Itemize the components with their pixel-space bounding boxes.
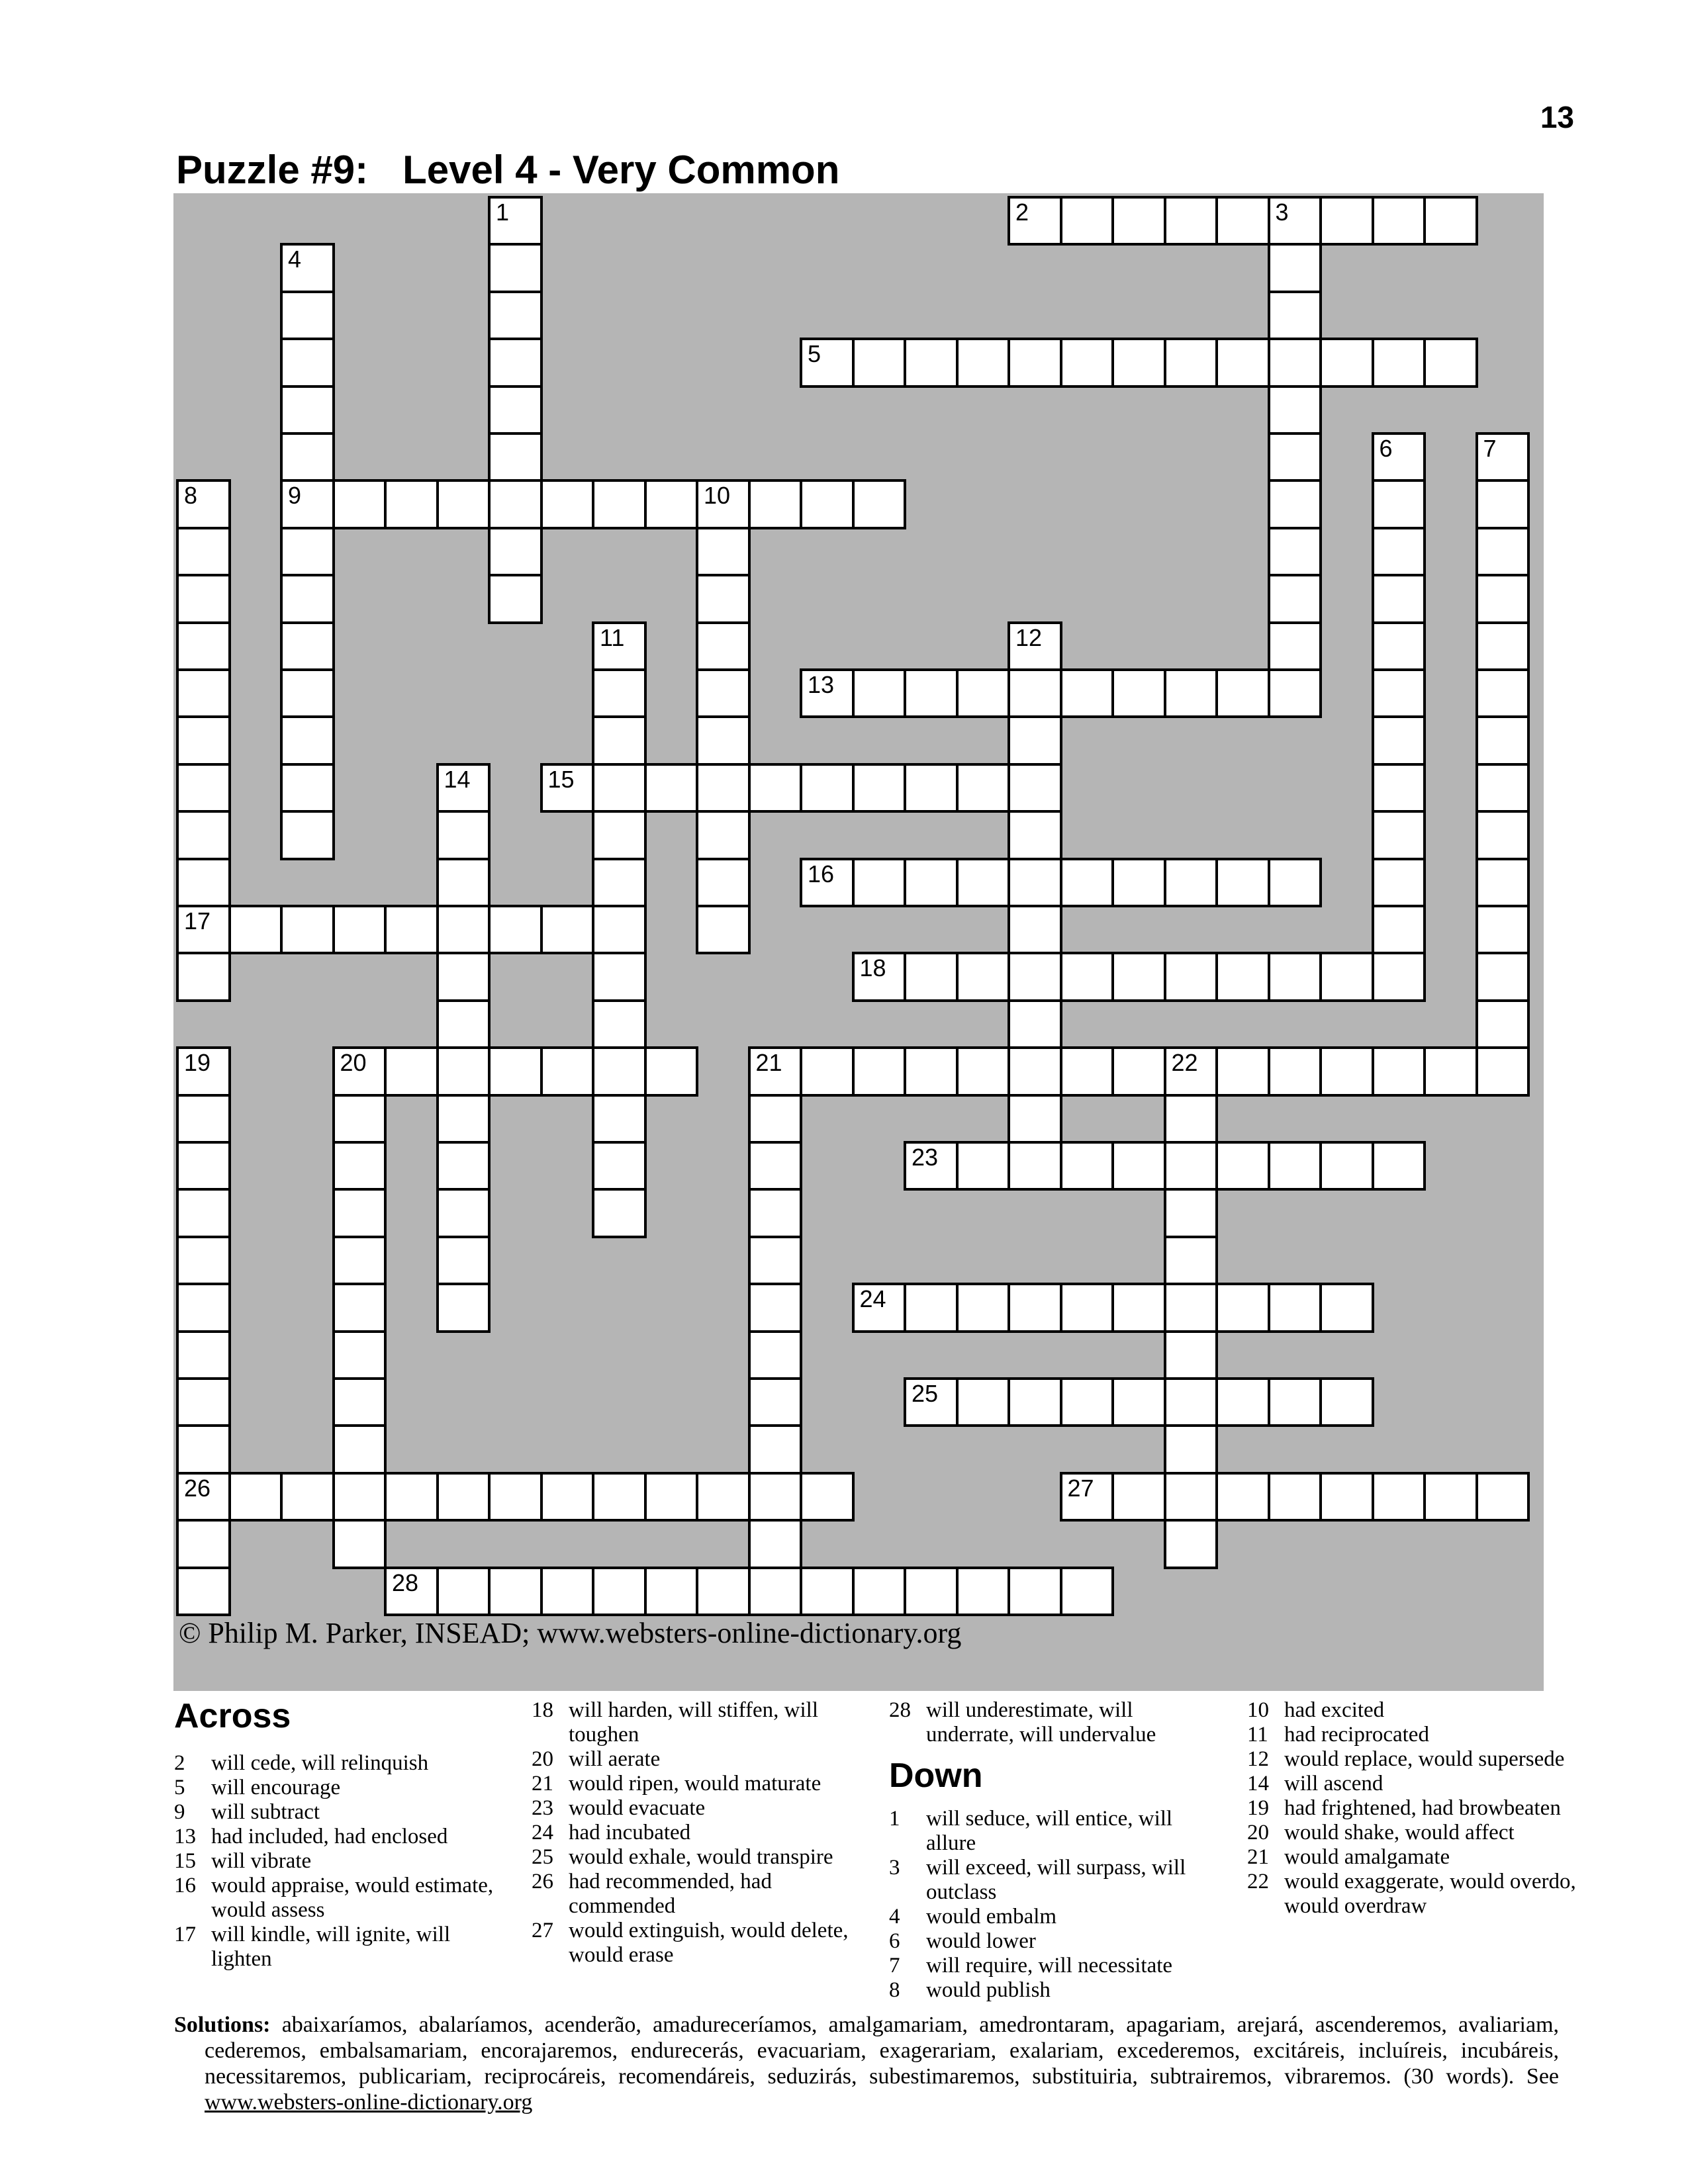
grid-cell[interactable] [1164,1472,1219,1522]
grid-cell[interactable] [852,1567,907,1616]
grid-cell[interactable] [176,1188,231,1238]
grid-cell[interactable] [228,1472,283,1522]
grid-cell[interactable] [1164,338,1219,387]
grid-cell[interactable] [1268,1377,1323,1427]
grid-cell[interactable] [956,763,1011,813]
grid-cell[interactable] [332,1236,387,1285]
grid-cell[interactable] [540,1046,595,1096]
grid-cell[interactable] [1268,952,1323,1001]
grid-cell[interactable] [748,479,803,529]
grid-cell[interactable] [332,1472,387,1522]
grid-cell[interactable] [280,1472,335,1522]
grid-cell[interactable] [332,1283,387,1332]
grid-cell[interactable]: 21 [748,1046,803,1096]
grid-cell[interactable] [904,1283,959,1332]
grid-cell[interactable] [436,1283,491,1332]
grid-cell[interactable] [1268,432,1323,482]
grid-cell[interactable] [1215,1046,1270,1096]
grid-cell[interactable] [1476,1046,1530,1096]
grid-cell[interactable] [592,999,647,1049]
grid-cell[interactable] [1423,338,1478,387]
grid-cell[interactable] [1164,1188,1219,1238]
grid-cell[interactable] [1423,196,1478,246]
grid-cell[interactable] [1111,196,1166,246]
grid-cell[interactable] [1268,243,1323,293]
grid-cell[interactable]: 1 [488,196,543,246]
grid-cell[interactable] [1060,1283,1115,1332]
grid-cell[interactable] [436,999,491,1049]
grid-cell[interactable] [436,905,491,954]
grid-cell[interactable] [540,905,595,954]
grid-cell[interactable] [904,338,959,387]
grid-cell[interactable]: 14 [436,763,491,813]
grid-cell[interactable] [332,1519,387,1569]
grid-cell[interactable] [1008,1141,1062,1191]
grid-cell[interactable] [436,858,491,907]
grid-cell[interactable] [176,1330,231,1380]
grid-cell[interactable] [332,1188,387,1238]
grid-cell[interactable] [904,668,959,718]
grid-cell[interactable] [956,952,1011,1001]
grid-cell[interactable] [1060,1141,1115,1191]
grid-cell[interactable] [176,1141,231,1191]
grid-cell[interactable] [176,763,231,813]
grid-cell[interactable]: 23 [904,1141,959,1191]
grid-cell[interactable] [176,715,231,765]
grid-cell[interactable] [384,1046,439,1096]
grid-cell[interactable] [1111,1046,1166,1096]
grid-cell[interactable]: 2 [1008,196,1062,246]
grid-cell[interactable] [176,952,231,1001]
grid-cell[interactable] [852,338,907,387]
grid-cell[interactable] [1164,1377,1219,1427]
grid-cell[interactable] [644,1472,699,1522]
grid-cell[interactable]: 3 [1268,196,1323,246]
grid-cell[interactable] [696,763,751,813]
grid-cell[interactable] [436,1141,491,1191]
grid-cell[interactable] [384,1472,439,1522]
grid-cell[interactable] [1164,1141,1219,1191]
grid-cell[interactable] [1268,1141,1323,1191]
grid-cell[interactable] [1268,385,1323,435]
grid-cell[interactable] [800,1046,855,1096]
grid-cell[interactable] [488,574,543,623]
grid-cell[interactable] [1164,1424,1219,1474]
grid-cell[interactable]: 15 [540,763,595,813]
grid-cell[interactable] [280,621,335,671]
grid-cell[interactable] [1476,1472,1530,1522]
grid-cell[interactable] [488,1472,543,1522]
grid-cell[interactable] [1008,905,1062,954]
grid-cell[interactable] [1372,1141,1427,1191]
solutions-link[interactable]: www.websters-online-dictionary.org [205,2090,532,2115]
grid-cell[interactable] [1008,1046,1062,1096]
grid-cell[interactable] [592,1567,647,1616]
grid-cell[interactable] [176,527,231,576]
grid-cell[interactable] [280,715,335,765]
grid-cell[interactable] [956,1377,1011,1427]
grid-cell[interactable] [1215,952,1270,1001]
grid-cell[interactable] [592,858,647,907]
grid-cell[interactable] [1008,338,1062,387]
grid-cell[interactable] [1423,1046,1478,1096]
grid-cell[interactable] [488,432,543,482]
grid-cell[interactable] [592,952,647,1001]
grid-cell[interactable] [1268,527,1323,576]
grid-cell[interactable] [592,810,647,860]
grid-cell[interactable] [696,1472,751,1522]
grid-cell[interactable] [852,1046,907,1096]
grid-cell[interactable] [1164,668,1219,718]
grid-cell[interactable] [436,952,491,1001]
grid-cell[interactable] [1319,1472,1374,1522]
grid-cell[interactable] [1372,715,1427,765]
grid-cell[interactable] [1060,1377,1115,1427]
grid-cell[interactable] [280,668,335,718]
grid-cell[interactable]: 11 [592,621,647,671]
grid-cell[interactable] [592,905,647,954]
grid-cell[interactable] [1215,196,1270,246]
grid-cell[interactable] [1008,1283,1062,1332]
grid-cell[interactable] [1372,479,1427,529]
grid-cell[interactable]: 8 [176,479,231,529]
grid-cell[interactable] [488,527,543,576]
grid-cell[interactable] [748,1377,803,1427]
grid-cell[interactable] [1215,1472,1270,1522]
grid-cell[interactable] [1372,858,1427,907]
grid-cell[interactable] [436,1094,491,1144]
grid-cell[interactable] [1164,1519,1219,1569]
grid-cell[interactable] [1476,668,1530,718]
grid-cell[interactable] [488,291,543,340]
grid-cell[interactable]: 18 [852,952,907,1001]
grid-cell[interactable] [1319,952,1374,1001]
grid-cell[interactable] [1111,668,1166,718]
grid-cell[interactable] [280,574,335,623]
grid-cell[interactable] [488,905,543,954]
grid-cell[interactable]: 10 [696,479,751,529]
grid-cell[interactable] [1268,1283,1323,1332]
grid-cell[interactable] [592,1046,647,1096]
grid-cell[interactable] [1008,999,1062,1049]
grid-cell[interactable] [748,1519,803,1569]
grid-cell[interactable] [696,905,751,954]
grid-cell[interactable] [748,1567,803,1616]
grid-cell[interactable] [1268,338,1323,387]
grid-cell[interactable] [436,1567,491,1616]
grid-cell[interactable] [592,1472,647,1522]
grid-cell[interactable] [592,1188,647,1238]
grid-cell[interactable] [644,1567,699,1616]
grid-cell[interactable]: 27 [1060,1472,1115,1522]
grid-cell[interactable] [1476,574,1530,623]
grid-cell[interactable] [1319,1046,1374,1096]
grid-cell[interactable] [1268,574,1323,623]
grid-cell[interactable] [1008,952,1062,1001]
grid-cell[interactable] [1164,952,1219,1001]
grid-cell[interactable] [1268,858,1323,907]
grid-cell[interactable] [1060,952,1115,1001]
grid-cell[interactable] [1423,1472,1478,1522]
grid-cell[interactable] [540,1567,595,1616]
grid-cell[interactable] [332,1377,387,1427]
grid-cell[interactable] [1008,715,1062,765]
grid-cell[interactable] [748,1188,803,1238]
grid-cell[interactable] [904,952,959,1001]
grid-cell[interactable] [1164,1094,1219,1144]
grid-cell[interactable] [748,1141,803,1191]
grid-cell[interactable] [176,574,231,623]
grid-cell[interactable] [1268,1472,1323,1522]
grid-cell[interactable] [1164,1330,1219,1380]
grid-cell[interactable] [176,1567,231,1616]
grid-cell[interactable] [644,763,699,813]
grid-cell[interactable] [904,763,959,813]
grid-cell[interactable] [436,1236,491,1285]
grid-cell[interactable]: 24 [852,1283,907,1332]
grid-cell[interactable] [956,858,1011,907]
grid-cell[interactable] [748,1472,803,1522]
grid-cell[interactable] [696,715,751,765]
grid-cell[interactable] [592,1141,647,1191]
grid-cell[interactable] [800,763,855,813]
grid-cell[interactable]: 26 [176,1472,231,1522]
grid-cell[interactable] [488,338,543,387]
grid-cell[interactable] [800,479,855,529]
grid-cell[interactable] [696,621,751,671]
grid-cell[interactable] [1215,1141,1270,1191]
grid-cell[interactable] [696,1567,751,1616]
grid-cell[interactable] [332,479,387,529]
grid-cell[interactable] [436,479,491,529]
grid-cell[interactable] [176,858,231,907]
grid-cell[interactable] [1319,196,1374,246]
grid-cell[interactable] [1215,858,1270,907]
grid-cell[interactable] [280,905,335,954]
grid-cell[interactable] [592,668,647,718]
grid-cell[interactable]: 13 [800,668,855,718]
grid-cell[interactable]: 28 [384,1567,439,1616]
grid-cell[interactable] [540,479,595,529]
grid-cell[interactable] [1268,291,1323,340]
grid-cell[interactable] [332,1424,387,1474]
grid-cell[interactable]: 25 [904,1377,959,1427]
grid-cell[interactable] [1476,999,1530,1049]
grid-cell[interactable] [1111,952,1166,1001]
grid-cell[interactable] [1008,668,1062,718]
grid-cell[interactable] [1319,338,1374,387]
grid-cell[interactable] [176,1519,231,1569]
grid-cell[interactable]: 19 [176,1046,231,1096]
grid-cell[interactable]: 5 [800,338,855,387]
grid-cell[interactable] [1215,1283,1270,1332]
grid-cell[interactable] [176,1424,231,1474]
grid-cell[interactable] [1476,905,1530,954]
grid-cell[interactable]: 9 [280,479,335,529]
grid-cell[interactable] [280,527,335,576]
grid-cell[interactable] [696,574,751,623]
grid-cell[interactable] [852,763,907,813]
grid-cell[interactable] [176,668,231,718]
grid-cell[interactable] [696,668,751,718]
grid-cell[interactable] [1008,1377,1062,1427]
grid-cell[interactable] [904,1567,959,1616]
grid-cell[interactable] [1008,810,1062,860]
grid-cell[interactable]: 6 [1372,432,1427,482]
grid-cell[interactable] [800,1567,855,1616]
grid-cell[interactable] [436,1188,491,1238]
grid-cell[interactable] [748,1330,803,1380]
grid-cell[interactable] [1319,1283,1374,1332]
grid-cell[interactable] [1111,338,1166,387]
grid-cell[interactable] [1372,527,1427,576]
grid-cell[interactable] [852,479,907,529]
grid-cell[interactable] [1476,527,1530,576]
grid-cell[interactable] [1060,668,1115,718]
grid-cell[interactable] [1215,1377,1270,1427]
grid-cell[interactable] [488,1046,543,1096]
grid-cell[interactable] [1111,1472,1166,1522]
grid-cell[interactable] [1372,338,1427,387]
grid-cell[interactable] [176,621,231,671]
grid-cell[interactable] [956,668,1011,718]
grid-cell[interactable] [1164,196,1219,246]
grid-cell[interactable] [956,1567,1011,1616]
grid-cell[interactable] [228,905,283,954]
grid-cell[interactable] [904,858,959,907]
grid-cell[interactable] [644,479,699,529]
grid-cell[interactable] [176,1236,231,1285]
grid-cell[interactable] [1060,1567,1115,1616]
grid-cell[interactable] [1372,810,1427,860]
grid-cell[interactable] [332,1330,387,1380]
grid-cell[interactable] [592,715,647,765]
grid-cell[interactable] [800,1472,855,1522]
grid-cell[interactable] [1319,1141,1374,1191]
grid-cell[interactable] [1476,763,1530,813]
grid-cell[interactable] [384,905,439,954]
grid-cell[interactable] [1060,1046,1115,1096]
grid-cell[interactable]: 16 [800,858,855,907]
grid-cell[interactable] [1111,1283,1166,1332]
grid-cell[interactable] [1476,810,1530,860]
grid-cell[interactable]: 22 [1164,1046,1219,1096]
grid-cell[interactable] [1060,858,1115,907]
grid-cell[interactable] [1476,715,1530,765]
grid-cell[interactable] [956,1141,1011,1191]
grid-cell[interactable] [956,338,1011,387]
grid-cell[interactable] [592,479,647,529]
grid-cell[interactable] [1008,858,1062,907]
grid-cell[interactable] [280,763,335,813]
grid-cell[interactable] [1008,763,1062,813]
grid-cell[interactable] [1164,1236,1219,1285]
grid-cell[interactable] [1060,338,1115,387]
grid-cell[interactable] [748,763,803,813]
grid-cell[interactable] [488,385,543,435]
grid-cell[interactable] [956,1046,1011,1096]
grid-cell[interactable] [1372,763,1427,813]
grid-cell[interactable] [592,1094,647,1144]
grid-cell[interactable] [436,1046,491,1096]
grid-cell[interactable] [488,479,543,529]
grid-cell[interactable] [1372,1046,1427,1096]
grid-cell[interactable]: 17 [176,905,231,954]
grid-cell[interactable] [1319,1377,1374,1427]
grid-cell[interactable] [384,479,439,529]
grid-cell[interactable] [1372,905,1427,954]
grid-cell[interactable] [1164,858,1219,907]
grid-cell[interactable] [1060,196,1115,246]
grid-cell[interactable] [540,1472,595,1522]
grid-cell[interactable] [1372,952,1427,1001]
grid-cell[interactable] [332,1141,387,1191]
grid-cell[interactable] [696,858,751,907]
grid-cell[interactable] [748,1424,803,1474]
grid-cell[interactable] [1111,1377,1166,1427]
grid-cell[interactable] [280,810,335,860]
grid-cell[interactable] [1215,668,1270,718]
grid-cell[interactable] [488,243,543,293]
grid-cell[interactable] [1008,1094,1062,1144]
grid-cell[interactable] [1268,668,1323,718]
grid-cell[interactable] [176,1094,231,1144]
grid-cell[interactable] [1268,1046,1323,1096]
grid-cell[interactable] [488,1567,543,1616]
grid-cell[interactable] [280,385,335,435]
grid-cell[interactable] [1476,621,1530,671]
grid-cell[interactable] [1215,338,1270,387]
grid-cell[interactable] [436,810,491,860]
grid-cell[interactable] [592,763,647,813]
grid-cell[interactable] [1372,1472,1427,1522]
grid-cell[interactable] [1111,858,1166,907]
grid-cell[interactable]: 4 [280,243,335,293]
grid-cell[interactable] [1111,1141,1166,1191]
grid-cell[interactable] [644,1046,699,1096]
grid-cell[interactable]: 20 [332,1046,387,1096]
grid-cell[interactable] [696,527,751,576]
grid-cell[interactable] [176,1283,231,1332]
grid-cell[interactable] [696,810,751,860]
grid-cell[interactable] [1476,952,1530,1001]
grid-cell[interactable] [1476,479,1530,529]
grid-cell[interactable] [176,1377,231,1427]
grid-cell[interactable] [852,858,907,907]
grid-cell[interactable] [280,432,335,482]
grid-cell[interactable] [748,1236,803,1285]
grid-cell[interactable] [1372,621,1427,671]
grid-cell[interactable]: 12 [1008,621,1062,671]
grid-cell[interactable] [1268,479,1323,529]
grid-cell[interactable] [852,668,907,718]
grid-cell[interactable] [904,1046,959,1096]
grid-cell[interactable] [176,810,231,860]
grid-cell[interactable] [280,338,335,387]
grid-cell[interactable]: 7 [1476,432,1530,482]
grid-cell[interactable] [280,291,335,340]
grid-cell[interactable] [332,905,387,954]
grid-cell[interactable] [748,1094,803,1144]
grid-cell[interactable] [956,1283,1011,1332]
grid-cell[interactable] [1008,1567,1062,1616]
grid-cell[interactable] [1164,1283,1219,1332]
grid-cell[interactable] [1476,858,1530,907]
grid-cell[interactable] [1372,196,1427,246]
grid-cell[interactable] [1372,668,1427,718]
grid-cell[interactable] [748,1283,803,1332]
grid-cell[interactable] [332,1094,387,1144]
